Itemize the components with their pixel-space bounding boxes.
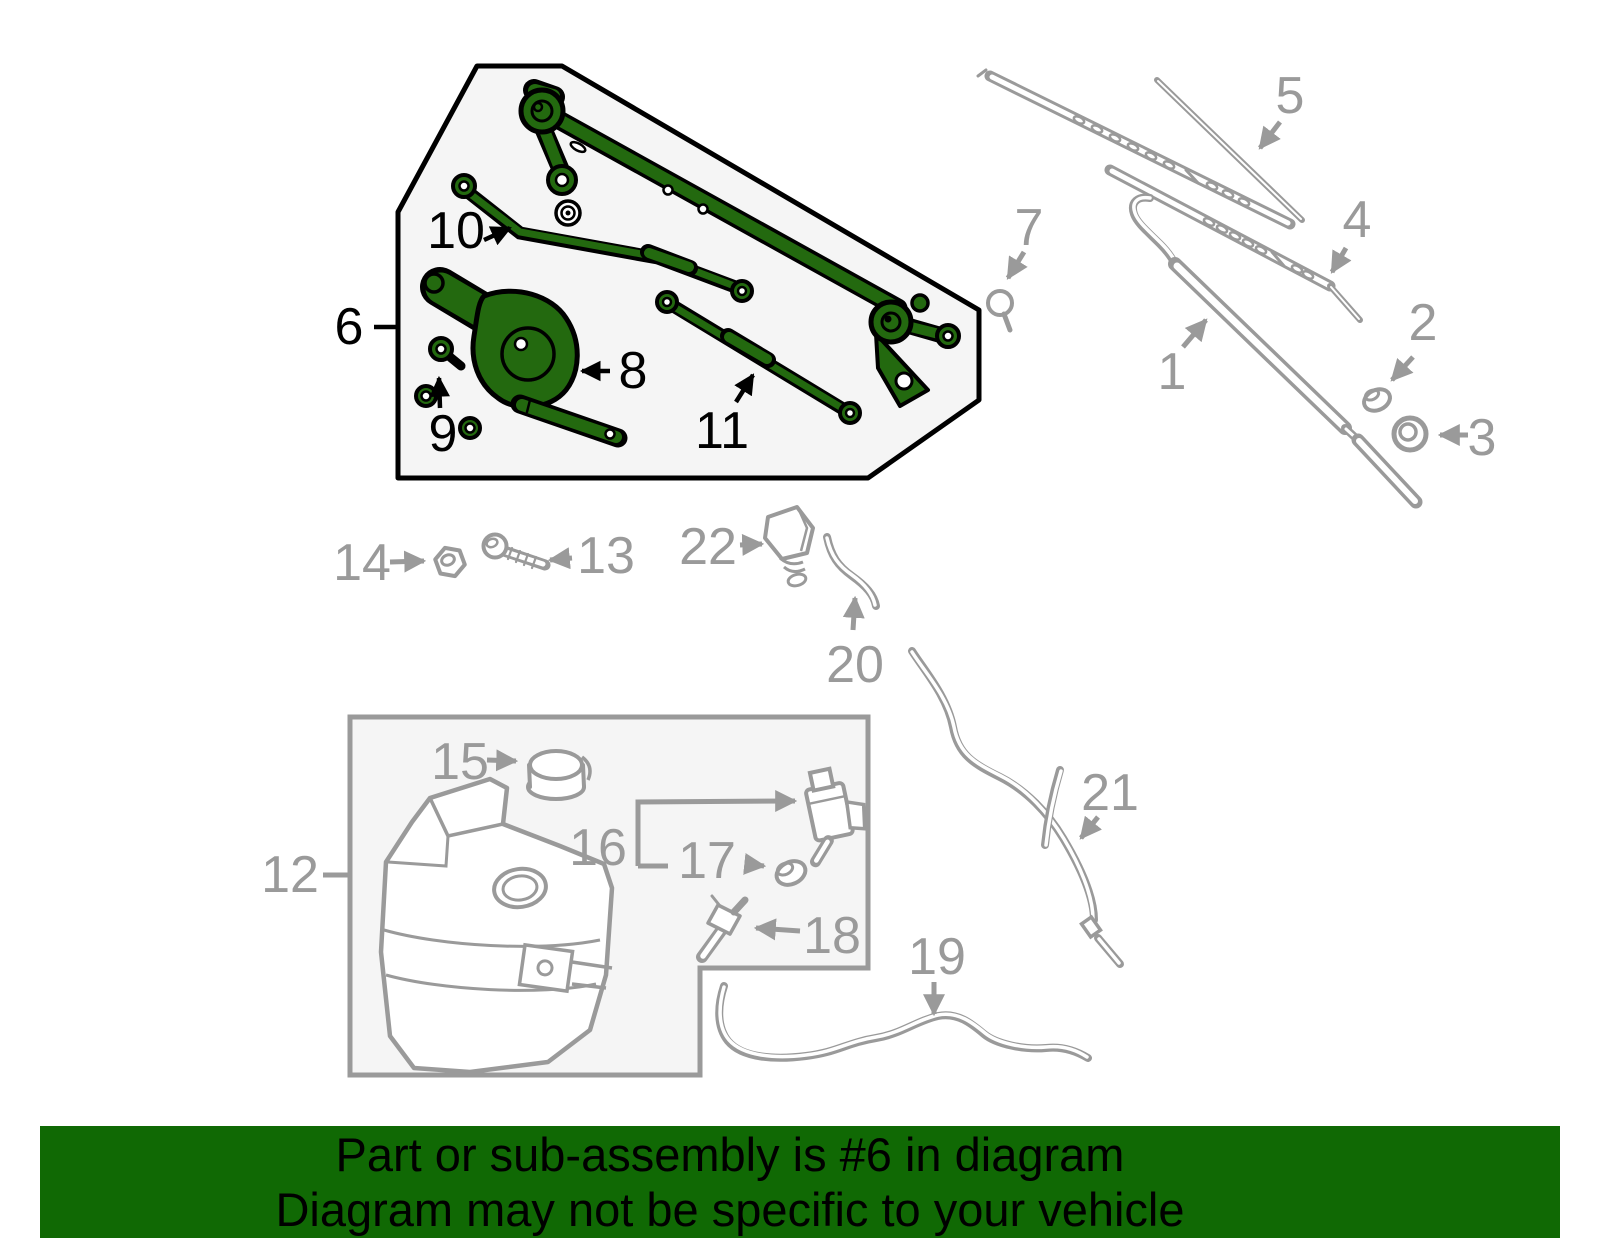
- part-callout-11: 11: [695, 405, 749, 457]
- part-callout-5: 5: [1276, 70, 1305, 122]
- part-callout-19: 19: [908, 931, 966, 983]
- banner-line-1: Part or sub-assembly is #6 in diagram: [336, 1127, 1125, 1182]
- part-callout-6: 6: [335, 301, 364, 353]
- disclaimer-banner: Part or sub-assembly is #6 in diagram Di…: [40, 1126, 1560, 1238]
- part-callout-2: 2: [1409, 297, 1438, 349]
- part-callout-22: 22: [679, 521, 737, 573]
- part-callout-13: 13: [577, 530, 635, 582]
- part-callout-4: 4: [1343, 194, 1372, 246]
- part-callout-7: 7: [1015, 202, 1044, 254]
- banner-line-2: Diagram may not be specific to your vehi…: [275, 1182, 1184, 1237]
- part-callout-20: 20: [826, 639, 884, 691]
- part-callout-14: 14: [333, 537, 391, 589]
- part-callout-21: 21: [1081, 767, 1139, 819]
- part-callout-16: 16: [569, 822, 627, 874]
- part-callout-12: 12: [261, 849, 319, 901]
- parts-diagram-image: 12345678910111213141516171819202122 Part…: [0, 0, 1600, 1249]
- part-callout-1: 1: [1158, 346, 1187, 398]
- part-callout-15: 15: [431, 736, 489, 788]
- part-callout-3: 3: [1468, 412, 1497, 464]
- part-callout-8: 8: [619, 345, 648, 397]
- part-callout-9: 9: [429, 408, 458, 460]
- part-callout-10: 10: [427, 205, 485, 257]
- part-callout-17: 17: [678, 835, 736, 887]
- part-callout-18: 18: [803, 910, 861, 962]
- part-callout-layer: 12345678910111213141516171819202122: [0, 0, 1600, 1249]
